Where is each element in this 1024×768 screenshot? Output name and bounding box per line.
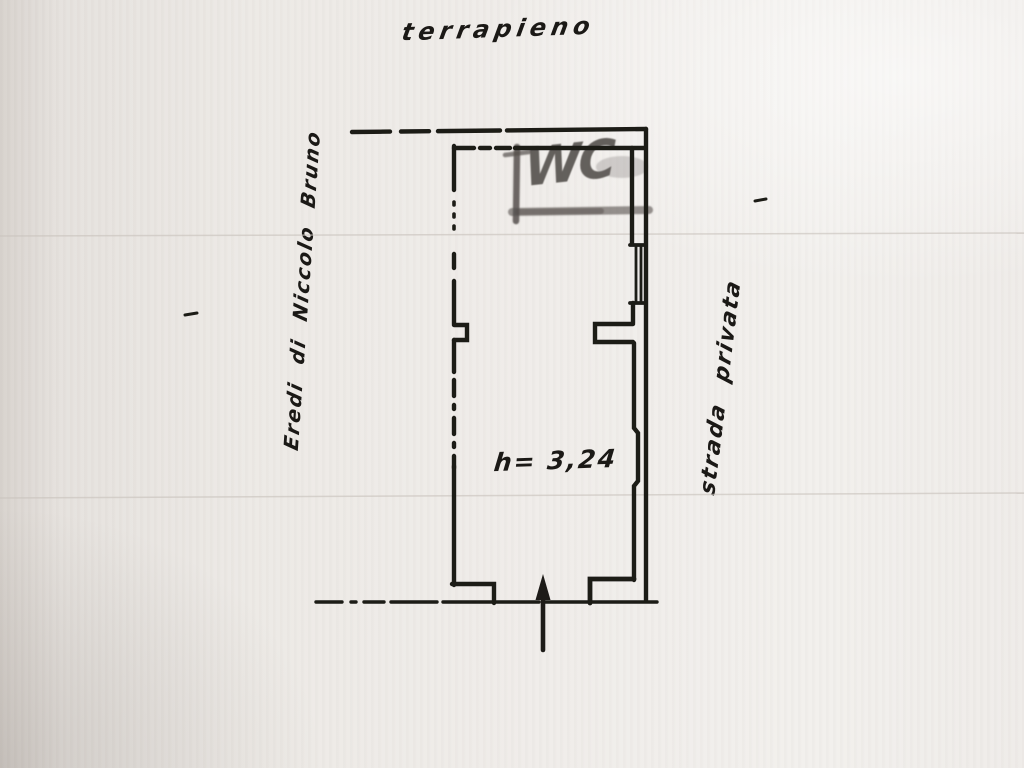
stray-dashes bbox=[185, 199, 766, 315]
scanned-floorplan-page: terrapieno Eredi di Niccolo Bruno strada… bbox=[0, 0, 1024, 768]
stray-dash-left bbox=[185, 313, 197, 315]
pencil-wc-marks bbox=[505, 147, 649, 221]
window-symbol bbox=[630, 245, 646, 303]
left-wall-notch bbox=[454, 325, 467, 340]
scan-line-lower bbox=[0, 493, 1024, 498]
ink-plan-lines bbox=[185, 129, 766, 603]
retaining-wall-line bbox=[352, 129, 646, 132]
scan-artifact-lines bbox=[0, 233, 1024, 498]
pencil-underline-core bbox=[518, 211, 601, 212]
pencil-top-tick bbox=[505, 152, 529, 155]
floorplan-drawing bbox=[0, 0, 1024, 768]
pencil-smudge bbox=[596, 156, 648, 178]
entrance-arrow-icon bbox=[536, 574, 551, 650]
door-jamb-left bbox=[452, 584, 494, 603]
inner-left-wall bbox=[454, 146, 467, 585]
door-jamb-right bbox=[590, 579, 634, 603]
scan-line-upper bbox=[0, 233, 1024, 236]
stray-dash-right bbox=[755, 199, 766, 201]
wall-stub bbox=[595, 324, 633, 342]
